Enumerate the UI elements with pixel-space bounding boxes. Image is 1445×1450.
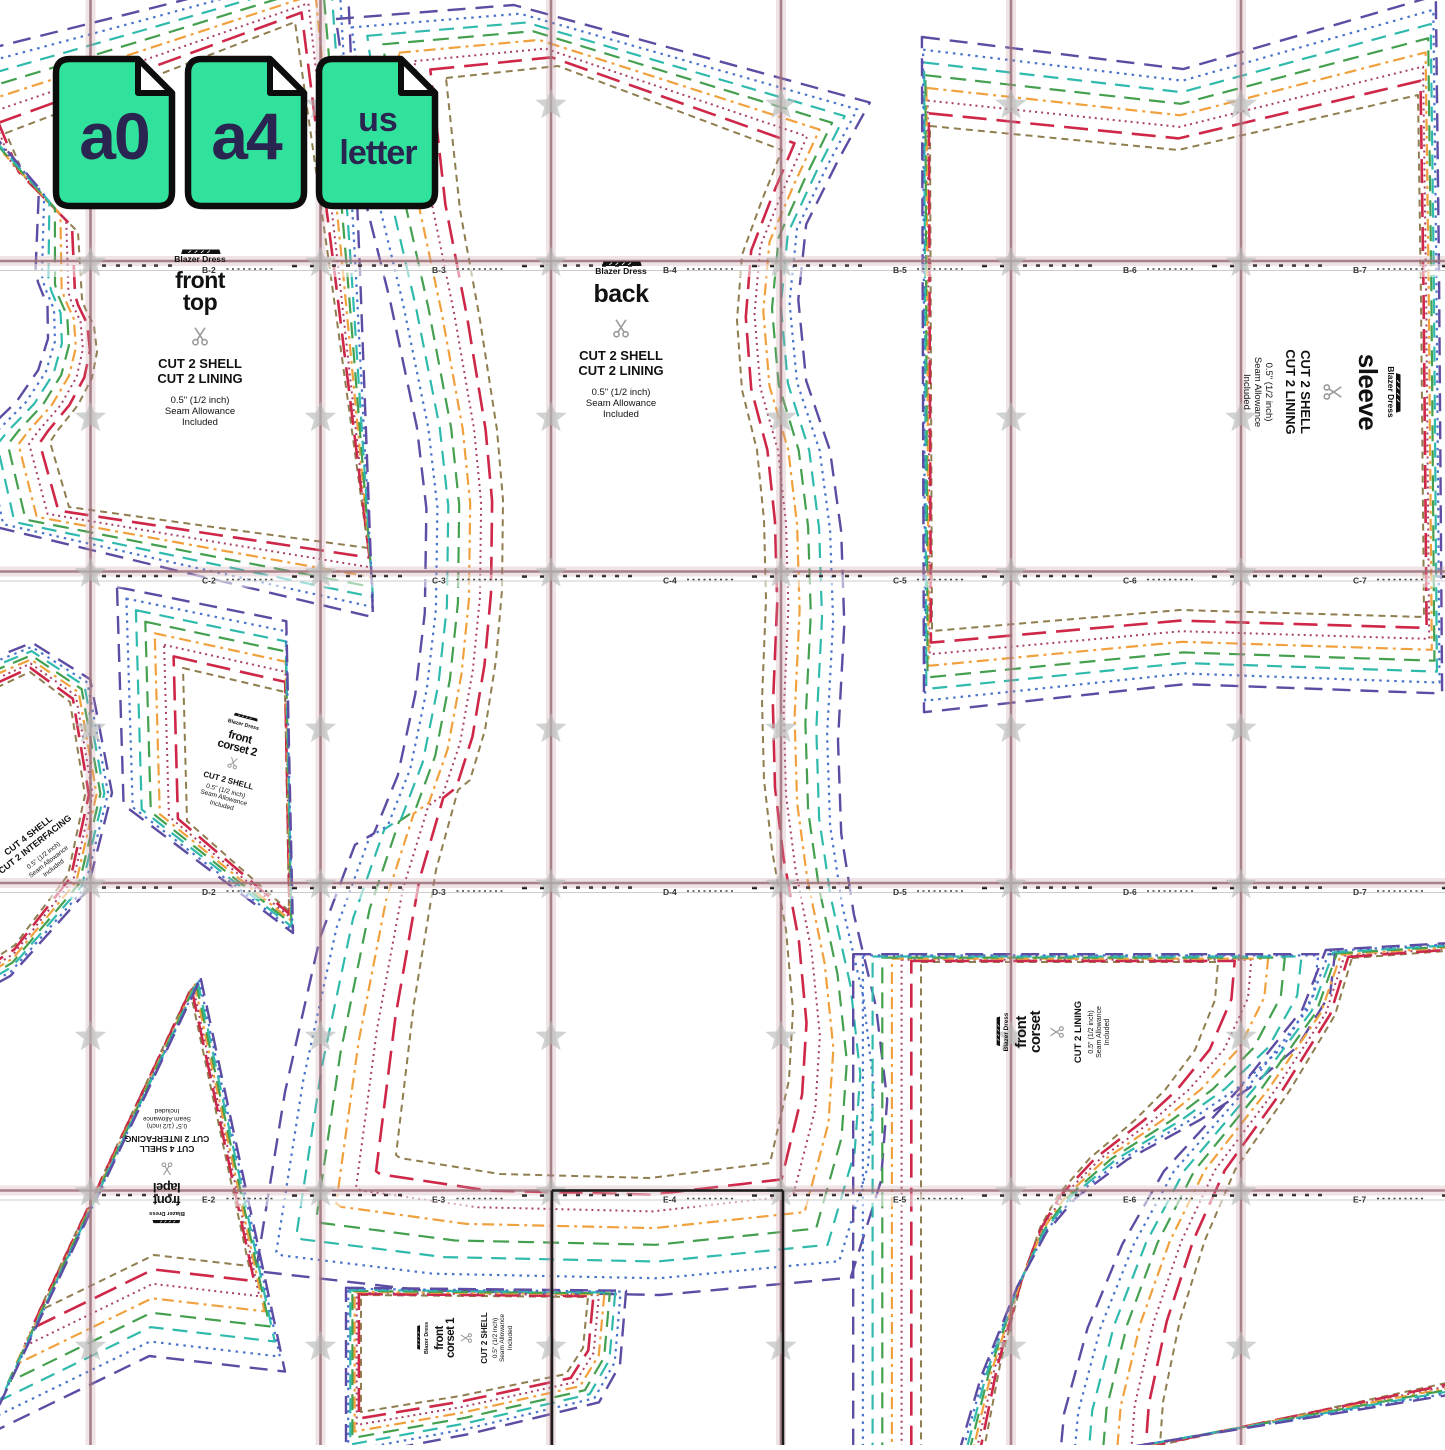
svg-text:CUT 2 LINING: CUT 2 LINING <box>1283 349 1298 434</box>
svg-text:Blazer Dress: Blazer Dress <box>1386 366 1396 418</box>
svg-text:0.5" (1/2 inch): 0.5" (1/2 inch) <box>492 1318 499 1358</box>
svg-text:letter: letter <box>339 134 417 172</box>
svg-text:0.5" (1/2 inch): 0.5" (1/2 inch) <box>147 1122 187 1129</box>
svg-text:B-4: B-4 <box>663 265 677 275</box>
svg-text:0.5" (1/2 inch): 0.5" (1/2 inch) <box>1088 1010 1095 1053</box>
svg-text:a0: a0 <box>79 99 148 173</box>
svg-text:lapel: lapel <box>153 1180 180 1195</box>
svg-text:CUT 2 LINING: CUT 2 LINING <box>578 363 663 378</box>
svg-text:Included: Included <box>507 1325 514 1350</box>
svg-text:E-4: E-4 <box>663 1195 677 1205</box>
svg-text:B-6: B-6 <box>1123 265 1137 275</box>
svg-text:corset: corset <box>1027 1010 1044 1053</box>
svg-text:C-3: C-3 <box>432 576 446 586</box>
svg-text:Blazer Dress: Blazer Dress <box>1003 1012 1010 1051</box>
svg-text:0.5" (1/2 inch): 0.5" (1/2 inch) <box>592 387 651 398</box>
svg-text:B-3: B-3 <box>432 265 446 275</box>
svg-text:B-7: B-7 <box>1353 265 1367 275</box>
svg-text:corset 1: corset 1 <box>445 1317 457 1358</box>
svg-text:Included: Included <box>154 1107 179 1114</box>
svg-text:C-6: C-6 <box>1123 576 1137 586</box>
svg-text:0.5" (1/2 inch): 0.5" (1/2 inch) <box>1263 363 1274 422</box>
svg-text:E-6: E-6 <box>1123 1195 1137 1205</box>
svg-text:Seam Allowance: Seam Allowance <box>165 406 235 417</box>
svg-text:Included: Included <box>603 409 639 420</box>
svg-text:CUT 2 LINING: CUT 2 LINING <box>1073 1001 1084 1063</box>
svg-text:Included: Included <box>1241 374 1252 410</box>
svg-text:C-2: C-2 <box>202 576 216 586</box>
svg-text:CUT 2 SHELL: CUT 2 SHELL <box>1298 350 1313 434</box>
svg-text:C-7: C-7 <box>1353 576 1367 586</box>
svg-text:0.5" (1/2 inch): 0.5" (1/2 inch) <box>171 395 230 406</box>
svg-text:Blazer Dress: Blazer Dress <box>174 254 226 264</box>
svg-text:Seam Allowance: Seam Allowance <box>143 1115 191 1122</box>
svg-text:Blazer Dress: Blazer Dress <box>148 1210 184 1216</box>
svg-text:C-5: C-5 <box>893 576 907 586</box>
svg-text:CUT 2 SHELL: CUT 2 SHELL <box>158 356 242 371</box>
svg-text:D-5: D-5 <box>893 887 907 897</box>
svg-text:top: top <box>183 289 218 315</box>
svg-text:Seam Allowance: Seam Allowance <box>586 398 656 409</box>
svg-text:Seam Allowance: Seam Allowance <box>1252 357 1263 427</box>
svg-text:Blazer Dress: Blazer Dress <box>424 1322 430 1354</box>
svg-text:D-2: D-2 <box>202 887 216 897</box>
svg-text:CUT 2 INTERFACING: CUT 2 INTERFACING <box>124 1134 209 1144</box>
svg-text:E-7: E-7 <box>1353 1195 1367 1205</box>
svg-text:D-3: D-3 <box>432 887 446 897</box>
svg-text:B-5: B-5 <box>893 265 907 275</box>
svg-text:E-3: E-3 <box>432 1195 446 1205</box>
svg-text:Seam Allowance: Seam Allowance <box>1096 1006 1103 1058</box>
svg-text:Included: Included <box>182 417 218 428</box>
svg-text:Seam Allowance: Seam Allowance <box>499 1314 506 1362</box>
svg-text:CUT 2 SHELL: CUT 2 SHELL <box>579 348 663 363</box>
svg-text:sleeve: sleeve <box>1353 354 1383 431</box>
svg-text:D-7: D-7 <box>1353 887 1367 897</box>
svg-text:CUT 4 SHELL: CUT 4 SHELL <box>140 1144 195 1154</box>
svg-text:CUT 2 LINING: CUT 2 LINING <box>157 371 242 386</box>
svg-text:Blazer Dress: Blazer Dress <box>595 266 647 276</box>
svg-text:back: back <box>594 280 650 308</box>
svg-text:C-4: C-4 <box>663 576 677 586</box>
svg-text:a4: a4 <box>211 99 283 173</box>
svg-text:E-5: E-5 <box>893 1195 907 1205</box>
svg-text:CUT 2 SHELL: CUT 2 SHELL <box>480 1312 489 1364</box>
svg-text:D-4: D-4 <box>663 887 677 897</box>
svg-text:D-6: D-6 <box>1123 887 1137 897</box>
svg-text:E-2: E-2 <box>202 1195 216 1205</box>
svg-text:Included: Included <box>1104 1019 1111 1046</box>
